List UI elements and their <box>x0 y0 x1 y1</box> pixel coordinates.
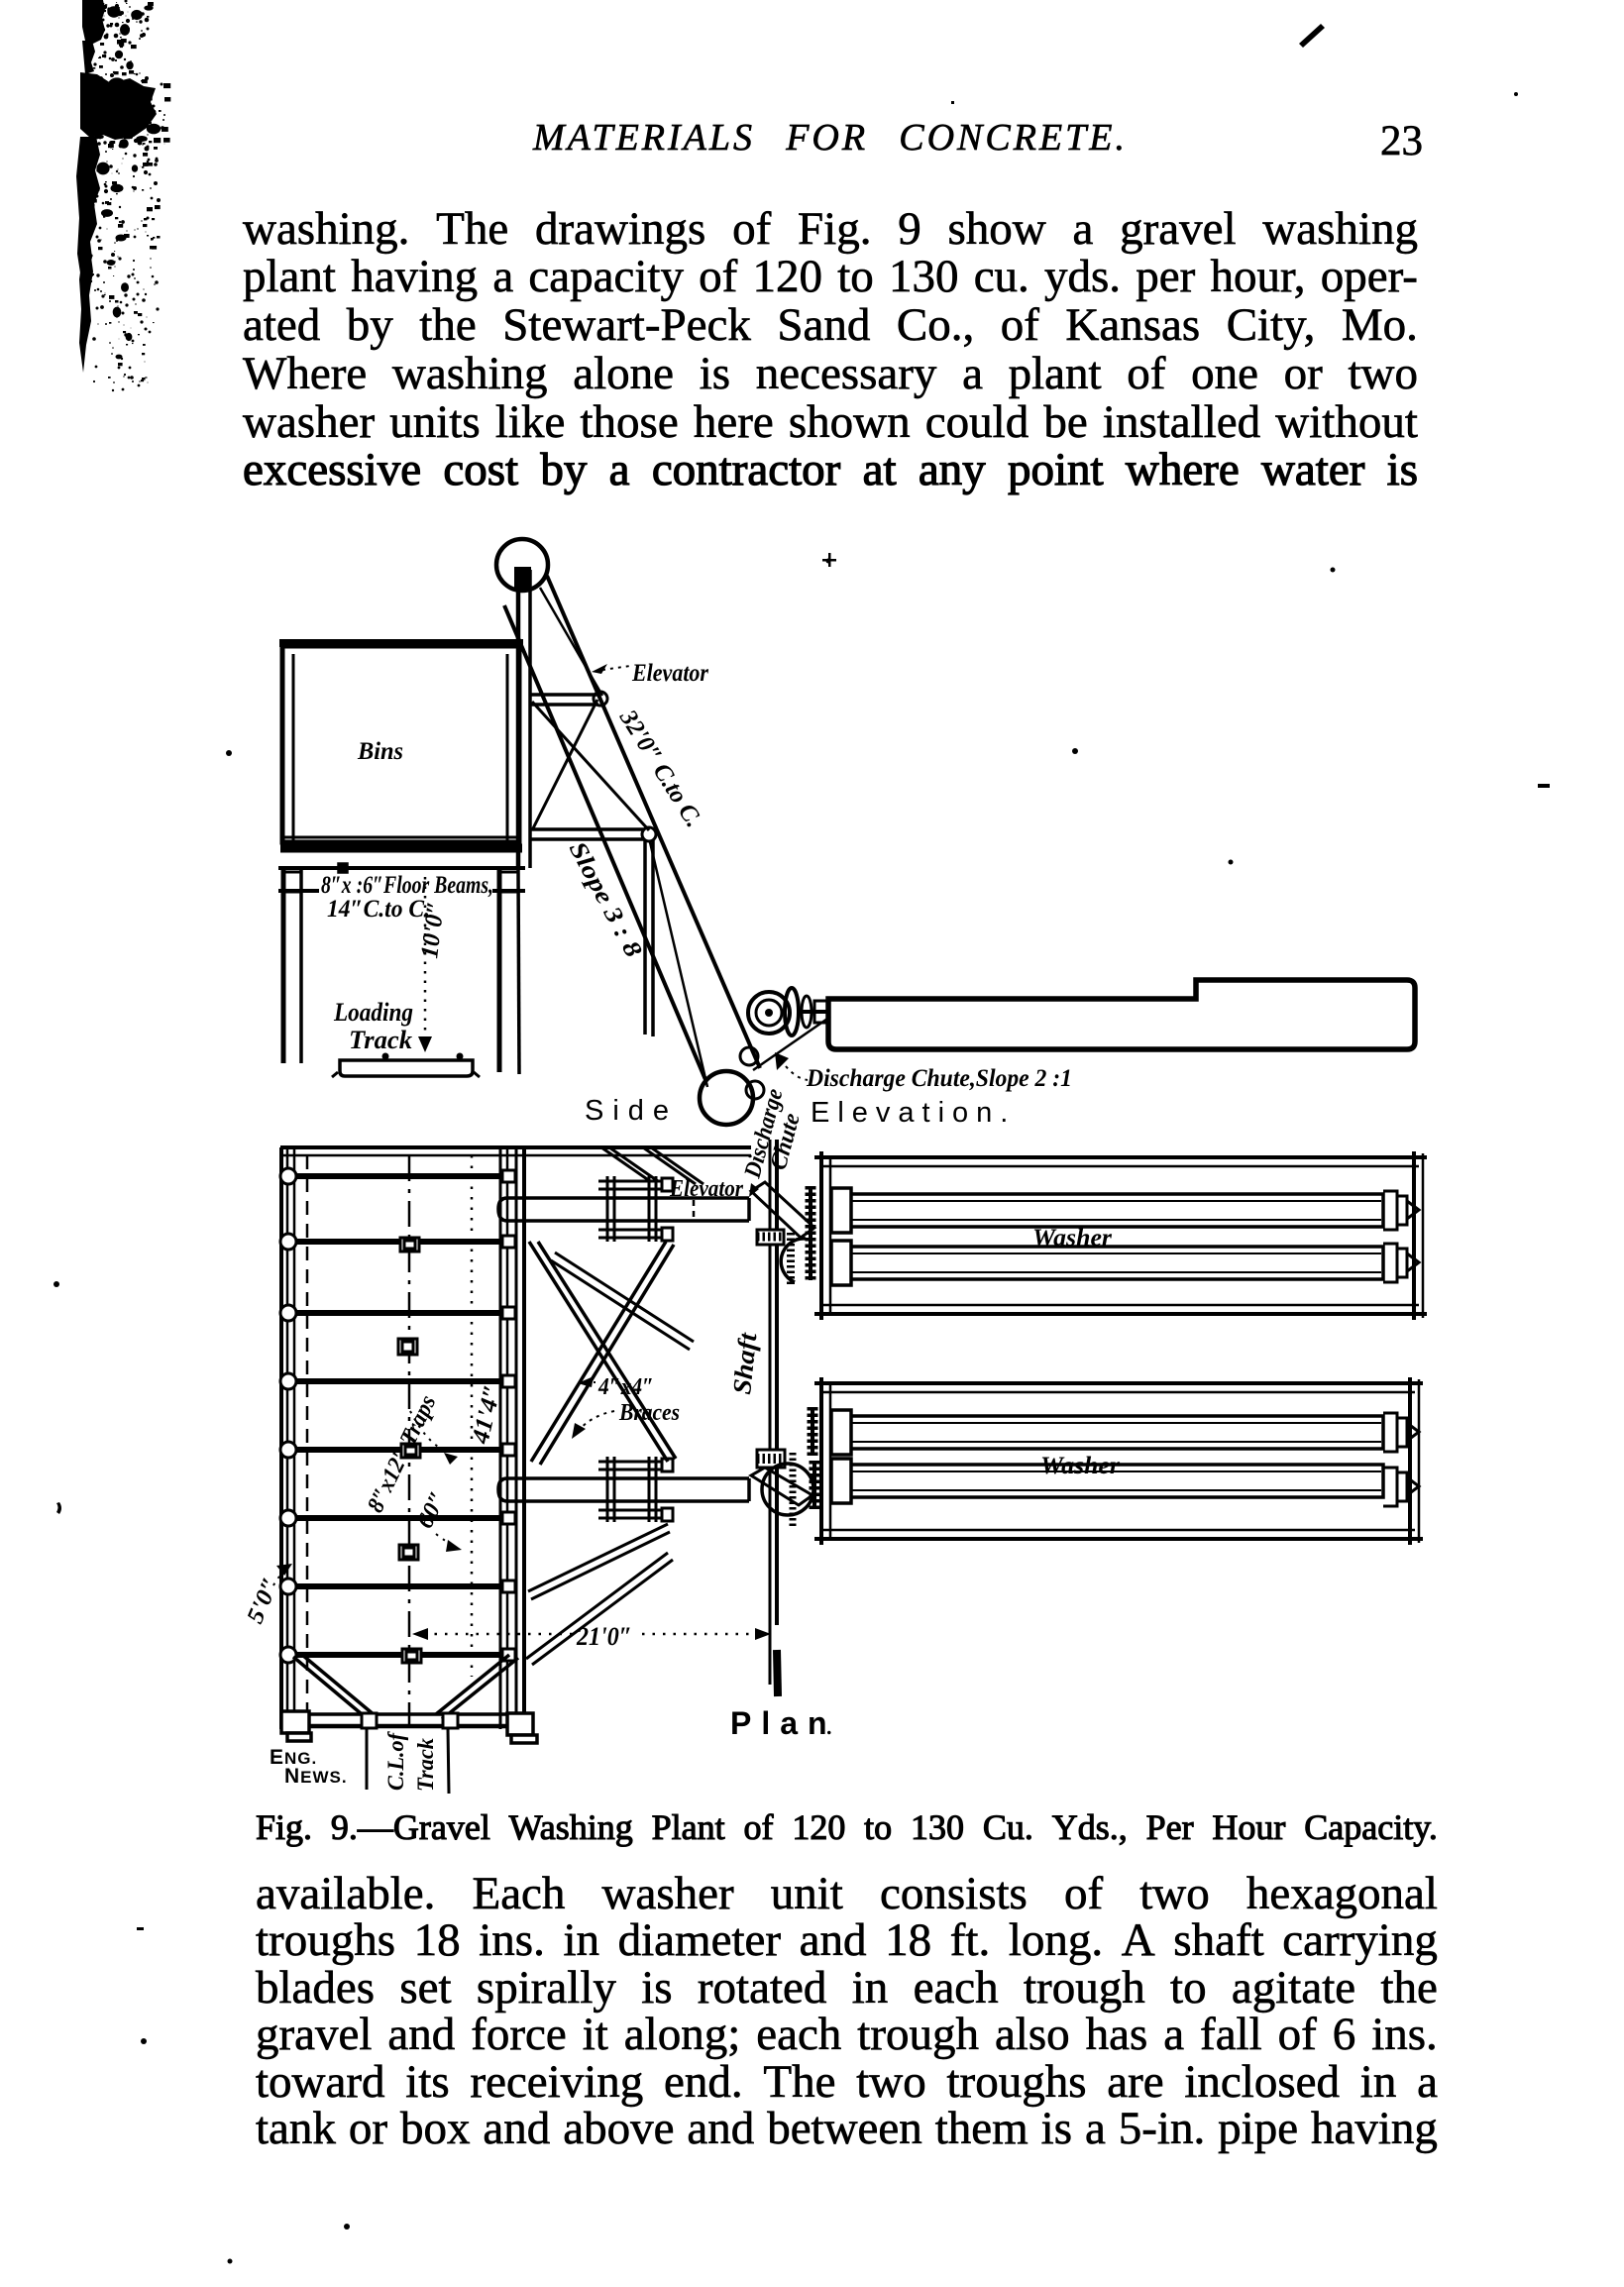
svg-text:Washer: Washer <box>1040 1453 1120 1479</box>
svg-text:Braces: Braces <box>618 1400 680 1426</box>
svg-text:Shaft: Shaft <box>727 1331 762 1396</box>
svg-text:Elevation.: Elevation. <box>811 1097 1016 1129</box>
svg-text:60″: 60″ <box>412 1487 452 1533</box>
svg-text:Loading: Loading <box>333 998 413 1027</box>
svg-text:Elevator: Elevator <box>631 660 708 687</box>
svg-text:NEWS.: NEWS. <box>284 1765 348 1788</box>
svg-text:10'0″: 10'0″ <box>416 900 450 960</box>
svg-text:Washer: Washer <box>1032 1225 1112 1252</box>
svg-text:14″C.to C.: 14″C.to C. <box>327 896 430 923</box>
svg-text:Track: Track <box>413 1738 438 1792</box>
svg-text:4″x4″: 4″x4″ <box>597 1374 654 1400</box>
svg-text:Discharge Chute,Slope 2 :1: Discharge Chute,Slope 2 :1 <box>806 1065 1072 1092</box>
svg-text:Elevator: Elevator <box>669 1176 743 1202</box>
svg-text:Track: Track <box>349 1026 412 1054</box>
svg-text:C.L.of: C.L.of <box>383 1731 408 1791</box>
svg-text:Bins: Bins <box>357 738 403 765</box>
svg-text:8″x :6″Floor Beams,: 8″x :6″Floor Beams, <box>321 872 493 899</box>
svg-text:5'0″: 5'0″ <box>243 1574 285 1627</box>
svg-text:Side: Side <box>585 1095 678 1127</box>
svg-text:32'0″ C.to C.: 32'0″ C.to C. <box>613 705 706 832</box>
svg-text:Plan: Plan <box>730 1705 837 1741</box>
svg-text:Slope 3 : 8: Slope 3 : 8 <box>564 837 647 962</box>
svg-text:.: . <box>825 1708 833 1741</box>
